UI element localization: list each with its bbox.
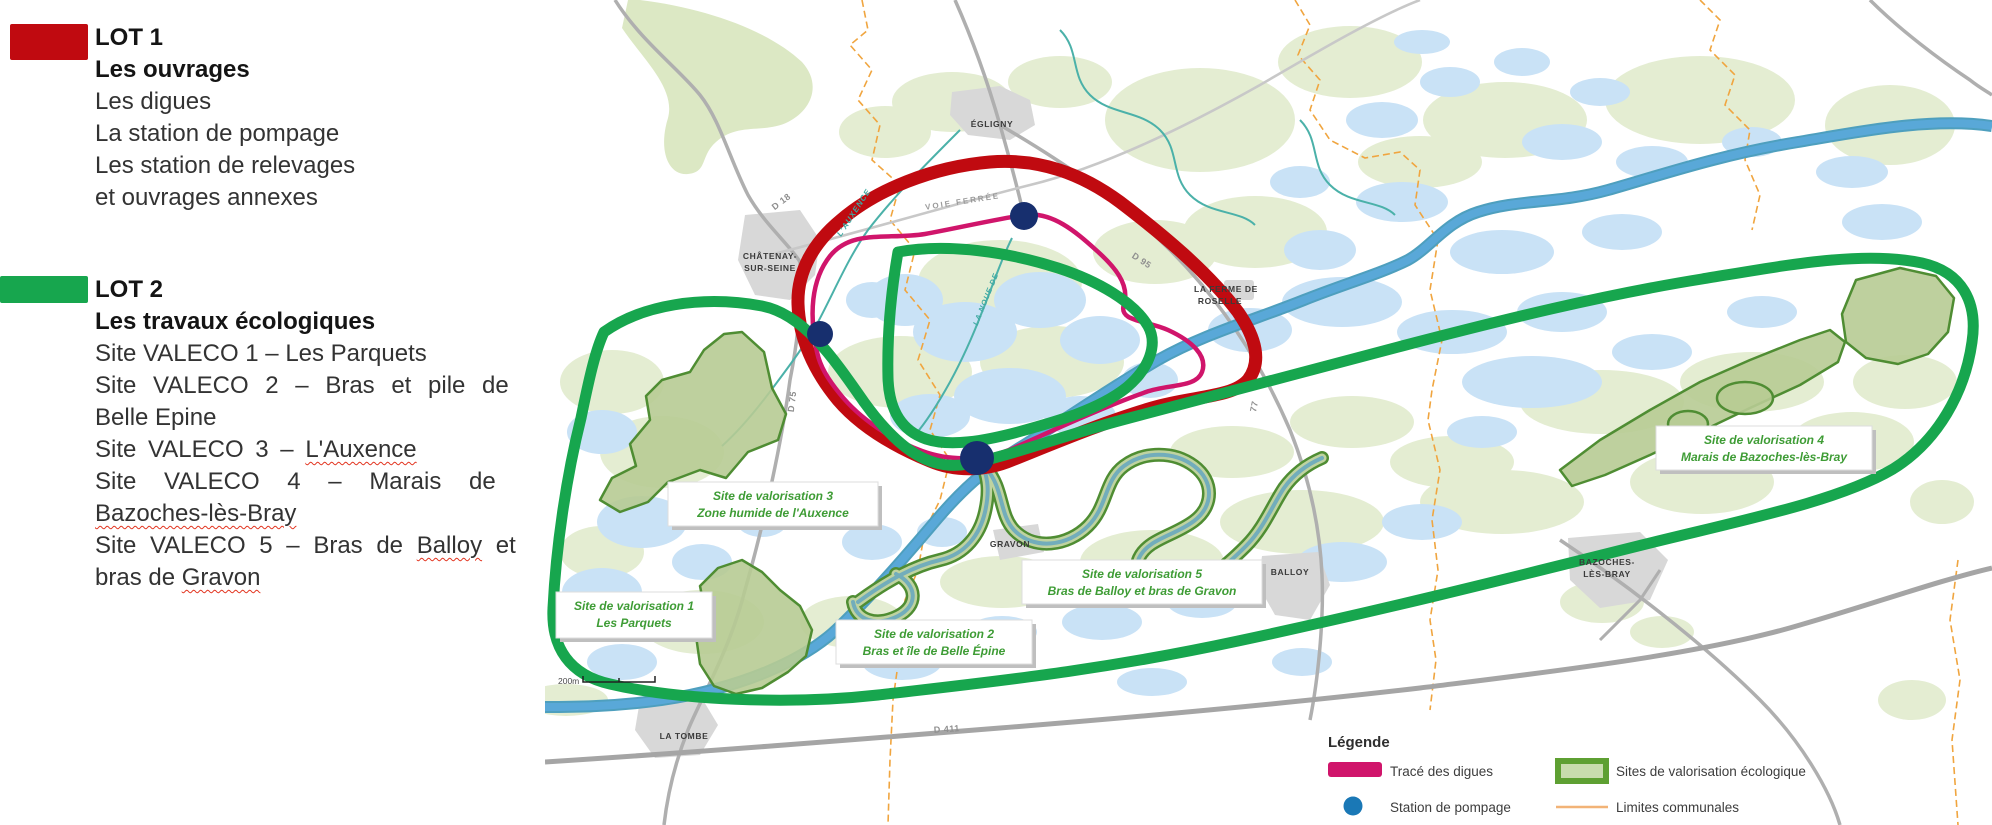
legend-limites-label: Limites communales — [1616, 800, 1739, 815]
svg-text:Site de valorisation 2: Site de valorisation 2 — [874, 627, 994, 641]
lot2-block: LOT 2 Les travaux écologiques Site VALEC… — [95, 274, 511, 594]
site4-marais-polygon-main — [1842, 268, 1954, 364]
legend-title: Légende — [1328, 734, 1390, 751]
lot2-site3-marked: L'Auxence — [305, 436, 416, 463]
lot2-site4-line2: Bazoches-lès-Bray — [95, 498, 511, 530]
svg-text:Site de valorisation 4: Site de valorisation 4 — [1704, 433, 1824, 447]
lot2-site3-pre: Site VALECO 3 – — [95, 436, 305, 463]
lot1-subtitle: Les ouvrages — [95, 54, 511, 86]
svg-text:Site de valorisation 3: Site de valorisation 3 — [713, 489, 833, 503]
lot2-site5-marked1: Balloy — [417, 532, 482, 559]
town-label-chatenay-2: SUR-SEINE — [744, 263, 796, 273]
project-map: ÉGLIGNY CHÂTENAY- SUR-SEINE LA FERME DE … — [545, 0, 1992, 825]
site3-label: Site de valorisation 3 Zone humide de l'… — [668, 482, 882, 530]
lot2-site4-line1: Site VALECO 4 – Marais de — [95, 466, 511, 498]
svg-text:Bras de Balloy et bras de Grav: Bras de Balloy et bras de Gravon — [1048, 584, 1237, 598]
site4-marais-polygon-small1 — [1717, 382, 1773, 414]
slide: LOT 1 Les ouvrages Les digues La station… — [0, 0, 1992, 825]
town-label-latombe: LA TOMBE — [660, 731, 709, 741]
svg-text:Zone humide de l'Auxence: Zone humide de l'Auxence — [696, 506, 849, 520]
lot2-site5-marked2: Gravon — [182, 564, 261, 591]
site1-label: Site de valorisation 1 Les Parquets — [556, 592, 716, 642]
scale-label: 200m — [558, 676, 579, 686]
lot2-site3: Site VALECO 3 – L'Auxence — [95, 434, 511, 466]
town-label-balloy: BALLOY — [1271, 567, 1310, 577]
svg-text:Les Parquets: Les Parquets — [596, 616, 672, 630]
site4-label: Site de valorisation 4 Marais de Bazoche… — [1656, 426, 1876, 474]
svg-text:Marais de Bazoches-lès-Bray: Marais de Bazoches-lès-Bray — [1681, 450, 1848, 464]
pumping-station-dot — [960, 441, 994, 475]
lot1-line: La station de pompage — [95, 118, 511, 150]
site2-label: Site de valorisation 2 Bras et île de Be… — [836, 620, 1036, 668]
lot2-site5-line1: Site VALECO 5 – Bras de Balloy et — [95, 530, 511, 562]
road-label-d18: D 18 — [770, 191, 793, 212]
legend-digue-swatch — [1328, 762, 1382, 777]
svg-text:Site de valorisation 5: Site de valorisation 5 — [1082, 567, 1202, 581]
town-label-chatenay-1: CHÂTENAY- — [743, 250, 797, 261]
town-label-egligny: ÉGLIGNY — [971, 119, 1013, 129]
legend-pompage-label: Station de pompage — [1390, 800, 1511, 815]
lot1-title: LOT 1 — [95, 22, 511, 54]
town-label-ferme-2: ROSELLE — [1198, 296, 1242, 306]
lot2-site5-pre: Site VALECO 5 – Bras de — [95, 532, 417, 559]
legend-digue-label: Tracé des digues — [1390, 764, 1493, 779]
text-panel: LOT 1 Les ouvrages Les digues La station… — [0, 0, 545, 825]
lot2-site5-mid: et — [482, 532, 516, 559]
lot1-line: Les station de relevages — [95, 150, 511, 182]
road-label-77: 77 — [1248, 400, 1260, 413]
town-label-bazoches-1: BAZOCHES- — [1579, 557, 1635, 567]
svg-text:Site de valorisation 1: Site de valorisation 1 — [574, 599, 694, 613]
legend: Légende Tracé des digues Sites de valori… — [1328, 734, 1806, 816]
pumping-station-dot — [807, 321, 833, 347]
lot2-site1: Site VALECO 1 – Les Parquets — [95, 338, 511, 370]
lot1-color-swatch — [10, 24, 88, 60]
lot2-site2-line2: Belle Epine — [95, 402, 511, 434]
lot2-color-swatch — [0, 276, 88, 303]
legend-pompage-swatch — [1344, 797, 1363, 816]
legend-sites-swatch — [1558, 761, 1606, 781]
town-label-ferme-1: LA FERME DE — [1194, 284, 1258, 294]
pumping-station-dot — [1010, 202, 1038, 230]
site5-label: Site de valorisation 5 Bras de Balloy et… — [1022, 560, 1266, 608]
lot1-line: Les digues — [95, 86, 511, 118]
road-label-d411: D 411 — [933, 723, 960, 735]
legend-sites-label: Sites de valorisation écologique — [1616, 764, 1806, 779]
town-label-bazoches-2: LÈS-BRAY — [1583, 569, 1630, 579]
lot2-site5-line2: bras de Gravon — [95, 562, 511, 594]
road-label-d75: D 75 — [786, 391, 798, 413]
svg-text:Bras et île de Belle Épine: Bras et île de Belle Épine — [863, 643, 1006, 658]
lot1-block: LOT 1 Les ouvrages Les digues La station… — [95, 22, 511, 214]
lot2-title: LOT 2 — [95, 274, 511, 306]
town-label-gravon: GRAVON — [990, 539, 1030, 549]
lot2-site4-marked: Bazoches-lès-Bray — [95, 500, 296, 527]
railway-label-voie-ferree: VOIE FERRÉE — [924, 191, 1000, 212]
lot1-line: et ouvrages annexes — [95, 182, 511, 214]
lot2-site5-pre2: bras de — [95, 564, 182, 591]
lot2-subtitle: Les travaux écologiques — [95, 306, 511, 338]
lot2-site2-line1: Site VALECO 2 – Bras et pile de — [95, 370, 511, 402]
